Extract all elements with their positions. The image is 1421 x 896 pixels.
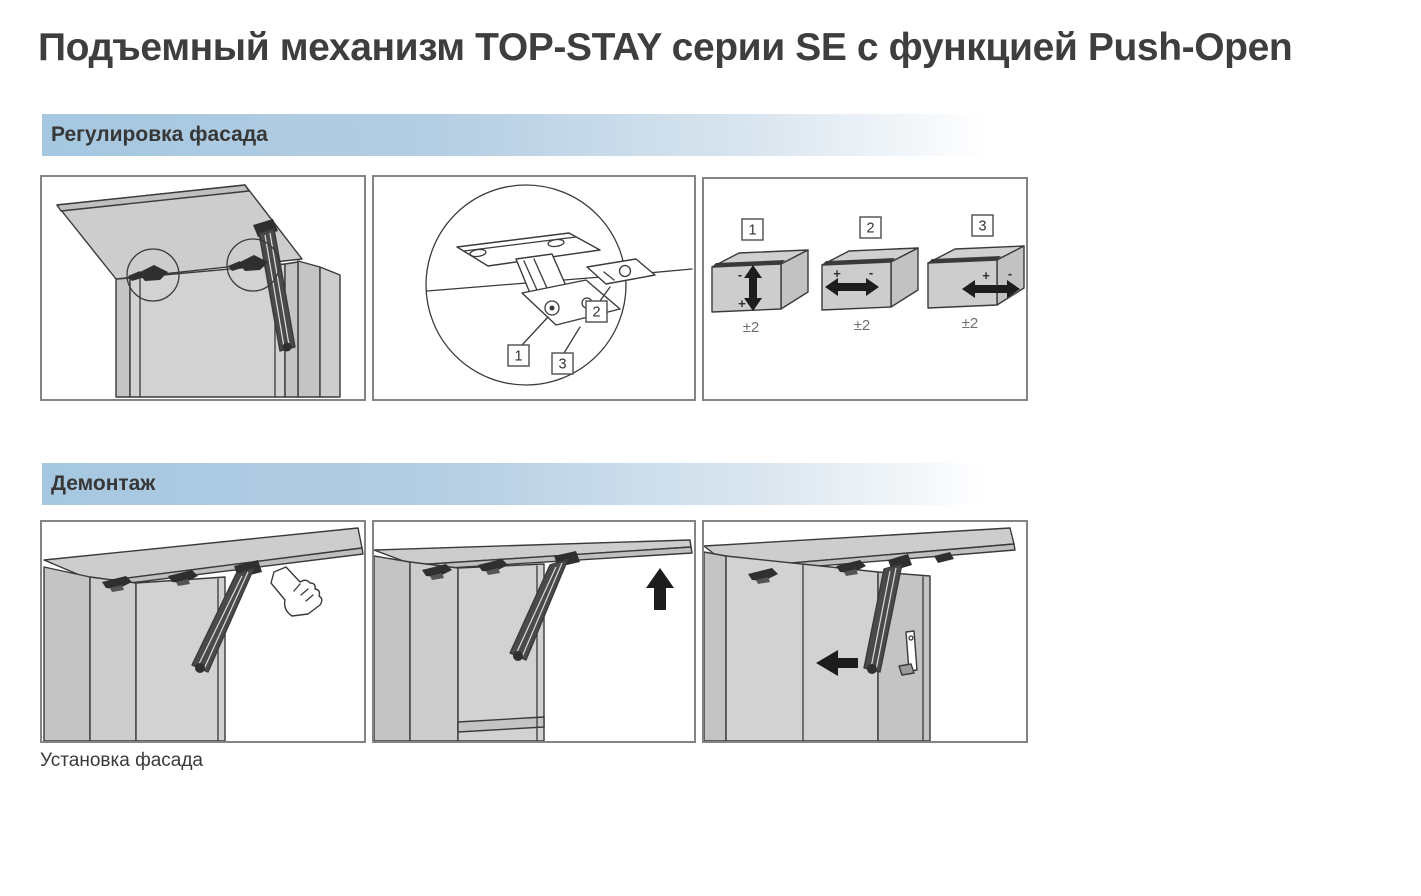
section-header-adjustment: Регулировка фасада [42,114,1028,156]
panel-adjustment-directions: 1 - + ±2 2 + - ±2 3 + - ±2 [702,177,1028,401]
svg-text:3: 3 [558,357,566,373]
svg-text:±2: ±2 [962,315,979,332]
hinge-detail-drawing: 1 3 2 [374,177,694,399]
section-header-adjustment-label: Регулировка фасада [42,123,268,147]
panel-dismantle-step3 [702,520,1028,743]
axis-3: 3 + - ±2 [928,215,1024,332]
svg-text:1: 1 [514,349,522,365]
svg-text:3: 3 [978,219,986,235]
hinge-mechanism [457,233,655,325]
dismantle-step2-drawing [374,522,694,741]
caption-install-facade: Установка фасада [40,750,203,772]
adjustment-directions-drawing: 1 - + ±2 2 + - ±2 3 + - ±2 [704,179,1026,399]
hand-icon [271,567,322,616]
axis-2: 2 + - ±2 [822,217,918,334]
page-title: Подъемный механизм TOP-STAY серии SE с ф… [38,26,1292,70]
section-header-dismantling: Демонтаж [42,463,1028,505]
svg-text:+: + [833,266,841,281]
dismantle-step3-drawing [704,522,1026,741]
svg-text:-: - [869,265,873,280]
svg-text:-: - [738,267,742,282]
callout-1: 1 [508,345,529,366]
callout-3: 3 [552,353,573,374]
up-arrow-icon [646,568,674,610]
panel-dismantle-step1 [40,520,366,743]
panel-dismantle-step2 [372,520,696,743]
section-header-dismantling-label: Демонтаж [42,472,155,496]
svg-text:2: 2 [592,305,600,321]
svg-text:2: 2 [866,221,874,237]
callout-2: 2 [586,301,607,322]
cabinet-open-drawing [42,177,364,399]
panel-adjustment-overview [40,175,366,401]
dismantle-step1-drawing [42,522,364,741]
panel-hinge-detail: 1 3 2 [372,175,696,401]
svg-text:±2: ±2 [743,319,760,336]
svg-text:±2: ±2 [854,317,871,334]
svg-text:+: + [982,268,990,283]
cabinet-carcass [116,261,340,397]
svg-text:-: - [1008,266,1012,281]
svg-text:+: + [738,296,746,311]
axis-1: 1 - + ±2 [712,219,808,336]
svg-text:1: 1 [748,223,756,239]
